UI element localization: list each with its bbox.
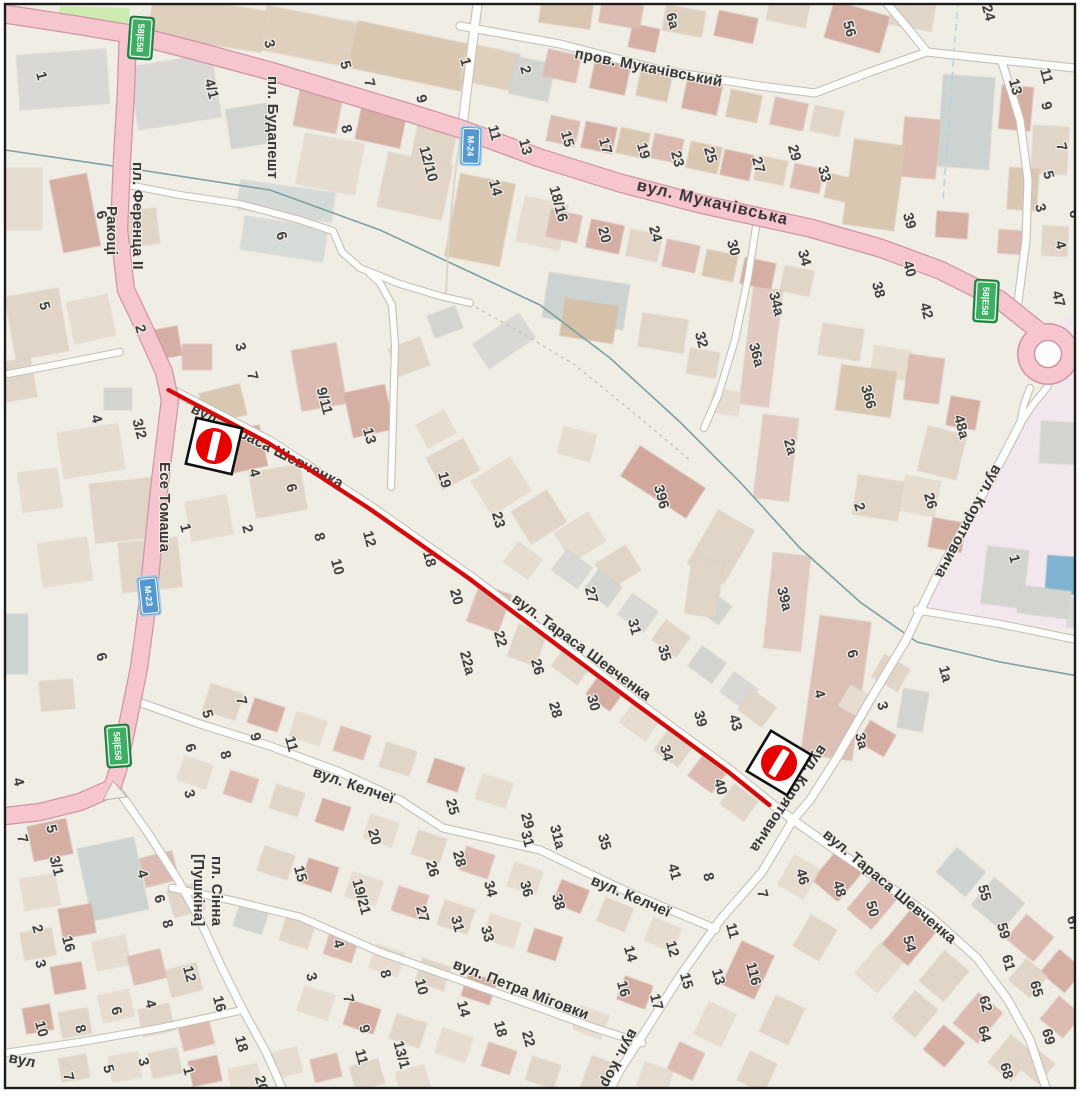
svg-text:[Пушкіна]: [Пушкіна] xyxy=(190,854,207,927)
svg-text:пл. Ференца ІІ: пл. Ференца ІІ xyxy=(129,162,146,270)
svg-text:пл. Сінна: пл. Сінна xyxy=(208,856,225,927)
svg-text:58|E58: 58|E58 xyxy=(980,286,991,315)
svg-text:пл. Будапешт: пл. Будапешт xyxy=(264,76,281,179)
svg-text:М-24: М-24 xyxy=(465,136,476,157)
svg-text:Есе Томаша: Есе Томаша xyxy=(156,462,173,553)
svg-text:58|E58: 58|E58 xyxy=(112,731,124,760)
svg-text:58|E58: 58|E58 xyxy=(135,23,147,52)
svg-text:М-23: М-23 xyxy=(142,585,154,606)
